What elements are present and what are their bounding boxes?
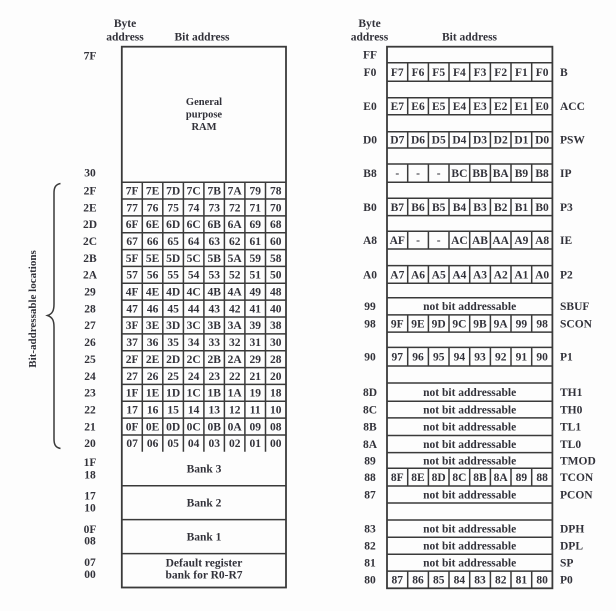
svg-text:F4: F4 — [453, 67, 466, 79]
svg-text:61: 61 — [249, 236, 261, 248]
svg-text:P0: P0 — [560, 575, 573, 587]
svg-text:1B: 1B — [207, 388, 221, 400]
svg-text:21: 21 — [249, 371, 261, 383]
svg-text:address: address — [106, 31, 144, 43]
svg-text:TH1: TH1 — [560, 387, 583, 399]
svg-text:39: 39 — [249, 320, 261, 332]
svg-text:-: - — [416, 235, 420, 247]
svg-text:52: 52 — [229, 270, 241, 282]
svg-text:not bit addressable: not bit addressable — [423, 404, 516, 416]
svg-text:31: 31 — [249, 337, 261, 349]
svg-text:22: 22 — [84, 405, 96, 417]
svg-text:2B: 2B — [83, 253, 97, 265]
svg-text:30: 30 — [270, 337, 282, 349]
svg-text:A6: A6 — [411, 269, 425, 281]
svg-text:69: 69 — [249, 219, 261, 231]
svg-text:96: 96 — [412, 352, 424, 364]
svg-text:1D: 1D — [166, 388, 180, 400]
svg-text:TMOD: TMOD — [560, 455, 596, 467]
svg-text:SCON: SCON — [560, 318, 593, 330]
svg-text:12: 12 — [229, 405, 241, 417]
svg-text:BB: BB — [472, 168, 488, 180]
svg-text:7E: 7E — [146, 185, 160, 197]
svg-text:3F: 3F — [126, 320, 139, 332]
svg-text:P2: P2 — [560, 269, 573, 281]
svg-text:2D: 2D — [83, 219, 97, 231]
svg-text:E3: E3 — [473, 101, 487, 113]
svg-text:0A: 0A — [228, 421, 243, 433]
svg-text:29: 29 — [249, 354, 261, 366]
svg-text:B5: B5 — [432, 202, 446, 214]
svg-text:25: 25 — [84, 354, 96, 366]
svg-text:23: 23 — [84, 388, 96, 400]
svg-text:75: 75 — [167, 202, 179, 214]
svg-text:A3: A3 — [473, 269, 487, 281]
svg-text:F6: F6 — [412, 67, 425, 79]
svg-text:71: 71 — [249, 202, 261, 214]
svg-text:2A: 2A — [83, 270, 98, 282]
svg-text:6C: 6C — [187, 219, 201, 231]
svg-text:17: 17 — [126, 405, 138, 417]
svg-text:F7: F7 — [391, 67, 404, 79]
svg-text:D3: D3 — [473, 135, 487, 147]
svg-text:59: 59 — [249, 253, 261, 265]
svg-text:37: 37 — [126, 337, 138, 349]
svg-text:F3: F3 — [474, 67, 487, 79]
svg-text:83: 83 — [364, 523, 376, 535]
svg-text:8C: 8C — [363, 404, 377, 416]
svg-text:D2: D2 — [494, 135, 508, 147]
svg-text:-: - — [395, 168, 399, 180]
svg-text:41: 41 — [249, 303, 261, 315]
svg-text:11: 11 — [250, 405, 261, 417]
svg-text:47: 47 — [126, 303, 138, 315]
svg-text:19: 19 — [249, 388, 261, 400]
svg-text:Bank 2: Bank 2 — [187, 498, 222, 510]
svg-text:D5: D5 — [432, 135, 446, 147]
svg-text:AF: AF — [390, 235, 405, 247]
svg-text:Bit-addressable locations: Bit-addressable locations — [27, 250, 39, 368]
svg-text:7F: 7F — [84, 51, 97, 63]
svg-text:B8: B8 — [535, 168, 549, 180]
svg-text:22: 22 — [229, 371, 241, 383]
svg-text:93: 93 — [474, 352, 486, 364]
svg-text:BA: BA — [493, 168, 510, 180]
svg-text:6E: 6E — [146, 219, 160, 231]
svg-text:6A: 6A — [228, 219, 243, 231]
svg-text:IP: IP — [560, 168, 572, 180]
svg-text:64: 64 — [188, 236, 200, 248]
svg-text:1A: 1A — [228, 388, 243, 400]
svg-text:B0: B0 — [535, 202, 549, 214]
svg-text:20: 20 — [84, 438, 96, 450]
svg-text:D4: D4 — [452, 135, 466, 147]
svg-text:82: 82 — [364, 541, 376, 553]
svg-text:SBUF: SBUF — [560, 301, 589, 313]
svg-text:06: 06 — [147, 438, 159, 450]
svg-text:D0: D0 — [535, 135, 549, 147]
svg-text:not bit addressable: not bit addressable — [423, 541, 516, 553]
svg-text:25: 25 — [167, 371, 179, 383]
svg-text:AC: AC — [451, 235, 468, 247]
svg-text:91: 91 — [516, 352, 528, 364]
svg-text:A8: A8 — [363, 235, 377, 247]
svg-text:86: 86 — [412, 575, 424, 587]
svg-text:9C: 9C — [452, 318, 466, 330]
svg-text:67: 67 — [126, 236, 138, 248]
svg-text:SP: SP — [560, 558, 573, 570]
svg-text:55: 55 — [167, 270, 179, 282]
svg-text:00: 00 — [270, 438, 282, 450]
svg-text:TL1: TL1 — [560, 422, 581, 434]
svg-text:8F: 8F — [391, 472, 404, 484]
svg-text:80: 80 — [536, 575, 548, 587]
svg-text:42: 42 — [229, 303, 241, 315]
svg-text:A0: A0 — [535, 269, 549, 281]
svg-text:A8: A8 — [535, 235, 549, 247]
svg-text:E4: E4 — [453, 101, 467, 113]
svg-text:IE: IE — [560, 235, 572, 247]
svg-text:51: 51 — [249, 270, 261, 282]
svg-text:7F: 7F — [126, 185, 139, 197]
svg-text:5C: 5C — [187, 253, 201, 265]
svg-text:20: 20 — [270, 371, 282, 383]
svg-text:D7: D7 — [390, 135, 404, 147]
svg-text:7C: 7C — [187, 185, 201, 197]
svg-text:07: 07 — [126, 438, 138, 450]
svg-text:D0: D0 — [363, 135, 377, 147]
svg-text:58: 58 — [270, 253, 282, 265]
svg-text:3E: 3E — [146, 320, 160, 332]
svg-text:9F: 9F — [391, 318, 404, 330]
svg-text:89: 89 — [364, 455, 376, 467]
svg-text:8A: 8A — [494, 472, 509, 484]
svg-text:33: 33 — [208, 337, 220, 349]
svg-text:General: General — [186, 97, 222, 108]
svg-text:FF: FF — [363, 50, 377, 62]
svg-text:6D: 6D — [166, 219, 180, 231]
svg-text:29: 29 — [84, 287, 96, 299]
svg-text:not bit addressable: not bit addressable — [423, 455, 516, 467]
svg-text:45: 45 — [167, 303, 179, 315]
svg-text:28: 28 — [84, 303, 96, 315]
svg-text:35: 35 — [167, 337, 179, 349]
svg-text:66: 66 — [147, 236, 159, 248]
svg-text:5F: 5F — [126, 253, 139, 265]
svg-text:04: 04 — [188, 438, 200, 450]
svg-text:80: 80 — [364, 575, 376, 587]
svg-text:72: 72 — [229, 202, 241, 214]
svg-text:E0: E0 — [535, 101, 549, 113]
svg-text:0C: 0C — [187, 421, 201, 433]
svg-text:Byte: Byte — [114, 18, 136, 30]
svg-text:26: 26 — [147, 371, 159, 383]
svg-text:1F: 1F — [126, 388, 139, 400]
svg-text:57: 57 — [126, 270, 138, 282]
svg-text:70: 70 — [270, 202, 282, 214]
svg-text:B8: B8 — [363, 168, 377, 180]
svg-text:not bit addressable: not bit addressable — [423, 422, 516, 434]
svg-text:E0: E0 — [363, 101, 377, 113]
svg-text:24: 24 — [188, 371, 200, 383]
svg-text:-: - — [437, 168, 441, 180]
svg-text:Byte: Byte — [358, 18, 380, 30]
svg-text:43: 43 — [208, 303, 220, 315]
svg-text:Bank 1: Bank 1 — [187, 531, 222, 543]
svg-text:Bit address: Bit address — [174, 31, 230, 43]
svg-text:63: 63 — [208, 236, 220, 248]
svg-text:not bit addressable: not bit addressable — [423, 387, 516, 399]
svg-text:5D: 5D — [166, 253, 180, 265]
svg-text:50: 50 — [270, 270, 282, 282]
svg-text:9D: 9D — [432, 318, 446, 330]
svg-text:AB: AB — [472, 235, 488, 247]
svg-text:4B: 4B — [207, 287, 221, 299]
svg-text:B0: B0 — [363, 202, 377, 214]
svg-text:A2: A2 — [494, 269, 508, 281]
svg-text:1C: 1C — [187, 388, 201, 400]
svg-text:68: 68 — [270, 219, 282, 231]
svg-text:08: 08 — [84, 536, 96, 548]
svg-text:2D: 2D — [166, 354, 180, 366]
svg-text:ACC: ACC — [560, 101, 585, 113]
svg-text:00: 00 — [84, 569, 96, 581]
svg-text:17: 17 — [84, 491, 96, 503]
svg-text:21: 21 — [84, 421, 96, 433]
svg-text:F0: F0 — [536, 67, 549, 79]
svg-text:RAM: RAM — [191, 122, 216, 133]
svg-text:34: 34 — [188, 337, 200, 349]
svg-text:02: 02 — [229, 438, 241, 450]
svg-text:E7: E7 — [391, 101, 405, 113]
svg-text:5E: 5E — [146, 253, 160, 265]
svg-text:AA: AA — [492, 235, 509, 247]
svg-text:PSW: PSW — [560, 135, 585, 147]
svg-text:0D: 0D — [166, 421, 180, 433]
svg-text:BC: BC — [451, 168, 467, 180]
svg-text:4E: 4E — [146, 287, 160, 299]
svg-text:90: 90 — [364, 352, 376, 364]
svg-text:56: 56 — [147, 270, 159, 282]
svg-text:3C: 3C — [187, 320, 201, 332]
svg-text:2E: 2E — [83, 202, 97, 214]
svg-text:97: 97 — [392, 352, 404, 364]
svg-text:8D: 8D — [363, 387, 377, 399]
svg-text:DPH: DPH — [560, 523, 584, 535]
svg-text:B9: B9 — [515, 168, 529, 180]
svg-text:6B: 6B — [207, 219, 221, 231]
svg-text:62: 62 — [229, 236, 241, 248]
svg-text:4C: 4C — [187, 287, 201, 299]
svg-text:E2: E2 — [494, 101, 508, 113]
svg-text:5A: 5A — [228, 253, 243, 265]
svg-text:8A: 8A — [363, 439, 378, 451]
svg-text:98: 98 — [536, 318, 548, 330]
svg-text:B2: B2 — [494, 202, 508, 214]
svg-text:2C: 2C — [187, 354, 201, 366]
svg-text:92: 92 — [495, 352, 507, 364]
svg-text:A7: A7 — [390, 269, 404, 281]
svg-text:82: 82 — [495, 575, 507, 587]
svg-text:F5: F5 — [432, 67, 445, 79]
svg-text:99: 99 — [364, 301, 376, 313]
svg-text:0F: 0F — [126, 421, 139, 433]
svg-text:6F: 6F — [126, 219, 139, 231]
svg-text:38: 38 — [270, 320, 282, 332]
svg-text:99: 99 — [516, 318, 528, 330]
svg-text:24: 24 — [84, 371, 96, 383]
svg-text:26: 26 — [84, 337, 96, 349]
svg-text:53: 53 — [208, 270, 220, 282]
svg-text:79: 79 — [249, 185, 261, 197]
svg-text:purpose: purpose — [186, 110, 223, 121]
svg-text:-: - — [416, 168, 420, 180]
svg-text:Bank 3: Bank 3 — [187, 464, 222, 476]
svg-text:not bit addressable: not bit addressable — [423, 489, 516, 501]
svg-text:A1: A1 — [514, 269, 528, 281]
svg-text:3D: 3D — [166, 320, 180, 332]
svg-text:1E: 1E — [146, 388, 160, 400]
svg-text:87: 87 — [392, 575, 404, 587]
svg-text:73: 73 — [208, 202, 220, 214]
svg-text:3A: 3A — [228, 320, 243, 332]
svg-text:48: 48 — [270, 287, 282, 299]
svg-text:E5: E5 — [432, 101, 446, 113]
svg-text:D1: D1 — [514, 135, 528, 147]
svg-text:8C: 8C — [452, 472, 466, 484]
svg-text:81: 81 — [364, 558, 376, 570]
svg-text:36: 36 — [147, 337, 159, 349]
svg-text:30: 30 — [84, 167, 96, 179]
svg-text:F1: F1 — [515, 67, 528, 79]
svg-text:P1: P1 — [560, 352, 573, 364]
svg-text:83: 83 — [474, 575, 486, 587]
svg-text:40: 40 — [270, 303, 282, 315]
svg-text:B4: B4 — [453, 202, 467, 214]
svg-text:95: 95 — [433, 352, 445, 364]
svg-text:2B: 2B — [207, 354, 221, 366]
svg-text:01: 01 — [249, 438, 261, 450]
svg-text:1F: 1F — [84, 457, 97, 469]
svg-text:44: 44 — [188, 303, 200, 315]
svg-text:27: 27 — [84, 320, 96, 332]
svg-text:89: 89 — [516, 472, 528, 484]
svg-text:0E: 0E — [146, 421, 160, 433]
svg-text:0F: 0F — [84, 524, 97, 536]
svg-text:98: 98 — [364, 318, 376, 330]
svg-text:32: 32 — [229, 337, 241, 349]
svg-text:TH0: TH0 — [560, 404, 583, 416]
svg-text:60: 60 — [270, 236, 282, 248]
svg-text:18: 18 — [84, 470, 96, 482]
svg-text:A5: A5 — [432, 269, 446, 281]
svg-text:2F: 2F — [84, 185, 97, 197]
svg-text:B6: B6 — [411, 202, 425, 214]
svg-text:28: 28 — [270, 354, 282, 366]
svg-text:Bit address: Bit address — [442, 31, 498, 43]
svg-text:81: 81 — [516, 575, 528, 587]
svg-text:8E: 8E — [411, 472, 425, 484]
svg-text:Default register: Default register — [166, 558, 243, 570]
svg-text:TCON: TCON — [560, 472, 594, 484]
svg-text:0B: 0B — [207, 421, 221, 433]
svg-text:84: 84 — [454, 575, 466, 587]
svg-text:7D: 7D — [166, 185, 180, 197]
svg-text:85: 85 — [433, 575, 445, 587]
svg-text:A9: A9 — [514, 235, 528, 247]
svg-text:16: 16 — [147, 405, 159, 417]
svg-text:not bit addressable: not bit addressable — [423, 523, 516, 535]
svg-text:E6: E6 — [411, 101, 425, 113]
svg-text:05: 05 — [167, 438, 179, 450]
svg-text:9E: 9E — [411, 318, 425, 330]
svg-text:TL0: TL0 — [560, 439, 581, 451]
svg-text:5B: 5B — [207, 253, 221, 265]
svg-text:46: 46 — [147, 303, 159, 315]
svg-text:8B: 8B — [473, 472, 487, 484]
svg-text:D6: D6 — [411, 135, 425, 147]
svg-text:9A: 9A — [494, 318, 509, 330]
svg-text:77: 77 — [126, 202, 138, 214]
svg-text:13: 13 — [208, 405, 220, 417]
svg-text:2A: 2A — [228, 354, 243, 366]
svg-text:PCON: PCON — [560, 489, 593, 501]
svg-text:A4: A4 — [452, 269, 466, 281]
svg-text:F0: F0 — [364, 67, 377, 79]
svg-text:not bit addressable: not bit addressable — [423, 301, 516, 313]
svg-text:15: 15 — [167, 405, 179, 417]
svg-text:18: 18 — [270, 388, 282, 400]
svg-text:B: B — [560, 67, 568, 79]
svg-text:3B: 3B — [207, 320, 221, 332]
svg-text:08: 08 — [270, 421, 282, 433]
svg-text:8D: 8D — [432, 472, 446, 484]
svg-text:10: 10 — [84, 502, 96, 514]
svg-text:14: 14 — [188, 405, 200, 417]
svg-text:-: - — [437, 235, 441, 247]
svg-text:09: 09 — [249, 421, 261, 433]
svg-text:B7: B7 — [391, 202, 405, 214]
svg-text:49: 49 — [249, 287, 261, 299]
svg-text:76: 76 — [147, 202, 159, 214]
svg-text:65: 65 — [167, 236, 179, 248]
svg-text:07: 07 — [84, 557, 96, 569]
svg-text:bank for R0-R7: bank for R0-R7 — [165, 570, 242, 582]
svg-text:94: 94 — [454, 352, 466, 364]
svg-text:DPL: DPL — [560, 541, 583, 553]
svg-text:4F: 4F — [126, 287, 139, 299]
svg-text:88: 88 — [536, 472, 548, 484]
svg-text:90: 90 — [536, 352, 548, 364]
svg-text:78: 78 — [270, 185, 282, 197]
svg-text:4D: 4D — [166, 287, 180, 299]
svg-text:A0: A0 — [363, 269, 377, 281]
svg-text:27: 27 — [126, 371, 138, 383]
svg-text:88: 88 — [364, 472, 376, 484]
svg-text:7B: 7B — [207, 185, 221, 197]
svg-text:03: 03 — [208, 438, 220, 450]
svg-text:B3: B3 — [473, 202, 487, 214]
svg-text:2F: 2F — [126, 354, 139, 366]
svg-text:54: 54 — [188, 270, 200, 282]
svg-text:F2: F2 — [494, 67, 507, 79]
svg-text:P3: P3 — [560, 202, 573, 214]
svg-text:not bit addressable: not bit addressable — [423, 439, 516, 451]
svg-text:23: 23 — [208, 371, 220, 383]
svg-text:9B: 9B — [473, 318, 487, 330]
svg-text:2E: 2E — [146, 354, 160, 366]
svg-text:7A: 7A — [228, 185, 243, 197]
